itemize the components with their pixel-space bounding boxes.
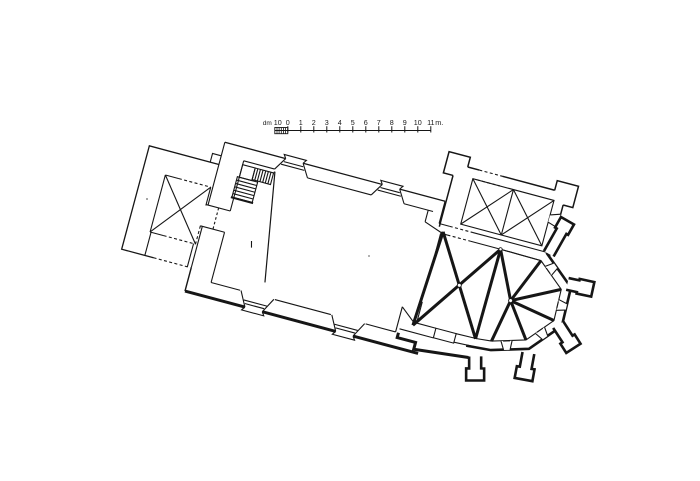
svg-text:7: 7 [377, 118, 381, 127]
svg-text:10: 10 [274, 118, 282, 127]
svg-text:2: 2 [312, 118, 316, 127]
svg-text:11: 11 [427, 118, 434, 127]
svg-text:3: 3 [325, 118, 329, 127]
svg-text:m.: m. [435, 118, 443, 127]
svg-text:1: 1 [299, 118, 303, 127]
svg-text:dm: dm [263, 120, 272, 127]
svg-text:4: 4 [338, 118, 342, 127]
svg-text:0: 0 [286, 118, 290, 127]
svg-text:8: 8 [390, 118, 394, 127]
svg-text:9: 9 [403, 118, 407, 127]
svg-text:5: 5 [351, 118, 355, 127]
svg-text:6: 6 [364, 118, 368, 127]
svg-text:10: 10 [414, 118, 422, 127]
